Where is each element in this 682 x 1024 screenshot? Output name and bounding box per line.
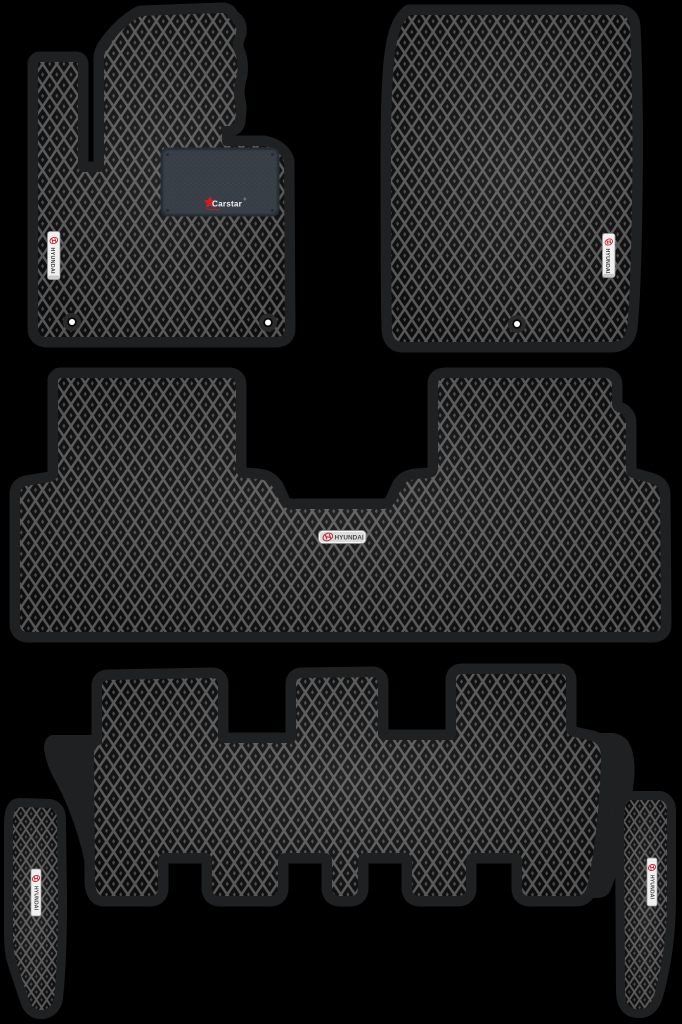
svg-text:HYUNDAI: HYUNDAI: [335, 535, 364, 542]
svg-text:Carstar: Carstar: [212, 200, 243, 209]
svg-text:®: ®: [244, 198, 247, 202]
svg-text:HYUNDAI: HYUNDAI: [32, 886, 38, 911]
svg-text:HYUNDAI: HYUNDAI: [648, 875, 654, 900]
svg-text:HYUNDAI: HYUNDAI: [604, 249, 610, 274]
svg-text:HYUNDAI: HYUNDAI: [49, 248, 55, 275]
